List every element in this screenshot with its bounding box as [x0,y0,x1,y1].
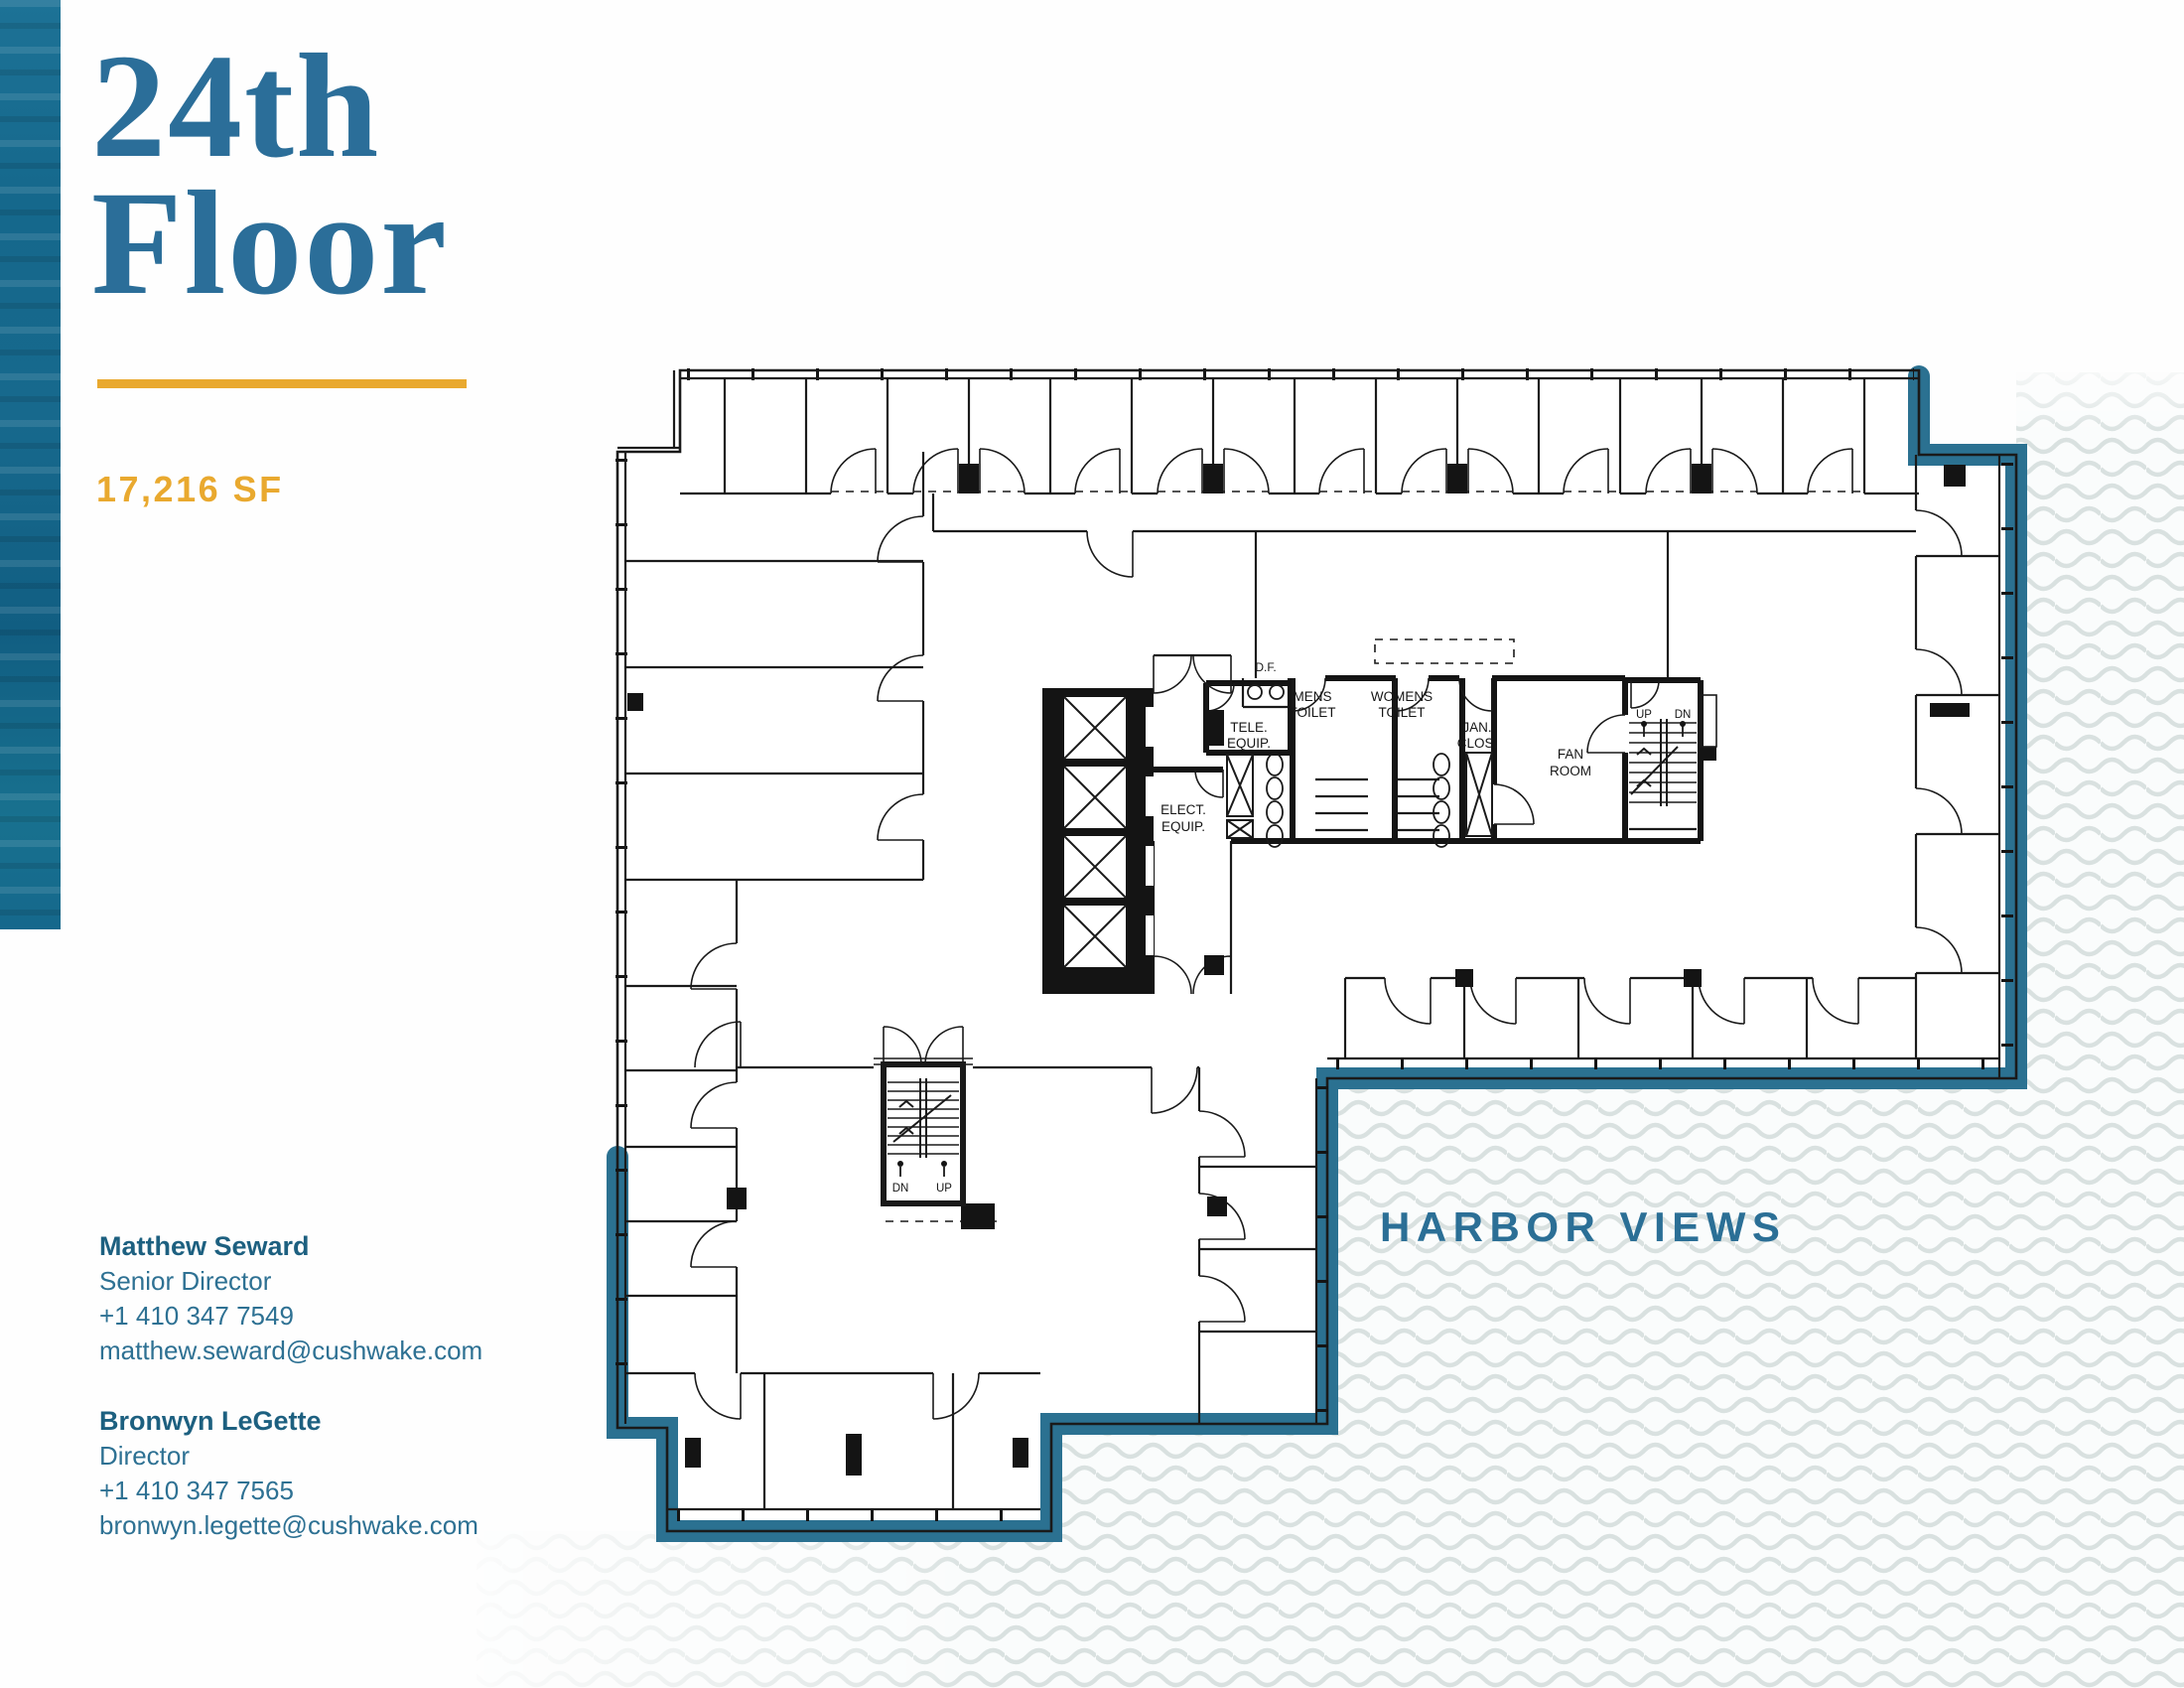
label-df-icon: D.F. [1255,660,1276,674]
leg-stair-up-label: UP [936,1183,952,1195]
elevator-bank [1042,688,1154,994]
room-label-tele-equip-1: TELE. [1230,720,1268,735]
core-stair-up-label: UP [1636,709,1652,721]
leg-stair-dn-label: DN [892,1183,909,1195]
room-label-fan-room-1: FAN [1558,747,1583,762]
room-label-womens-toilet-1: WOMENS [1371,689,1433,704]
room-label-jan-clos-2: CLOS. [1457,736,1498,751]
core-stair-dn-label: DN [1675,709,1692,721]
room-label-mens-toilet-2: TOILET [1289,705,1335,720]
room-label-mens-toilet-1: MENS [1293,689,1331,704]
room-label-jan-clos-1: JAN. [1462,720,1491,735]
room-label-elect-equip-1: ELECT. [1160,802,1206,817]
flyer-page: 24th Floor 17,216 SF Matthew Seward Seni… [0,0,2184,1688]
room-label-tele-equip-2: EQUIP. [1227,736,1271,751]
floor-plan: D.F. MENS TOILET WOMENS TOILET TELE. EQU… [0,0,2184,1688]
harbor-views-label: HARBOR VIEWS [1380,1203,1786,1251]
room-label-womens-toilet-2: TOILET [1378,705,1425,720]
room-label-fan-room-2: ROOM [1550,764,1591,778]
room-label-elect-equip-2: EQUIP. [1161,819,1205,834]
